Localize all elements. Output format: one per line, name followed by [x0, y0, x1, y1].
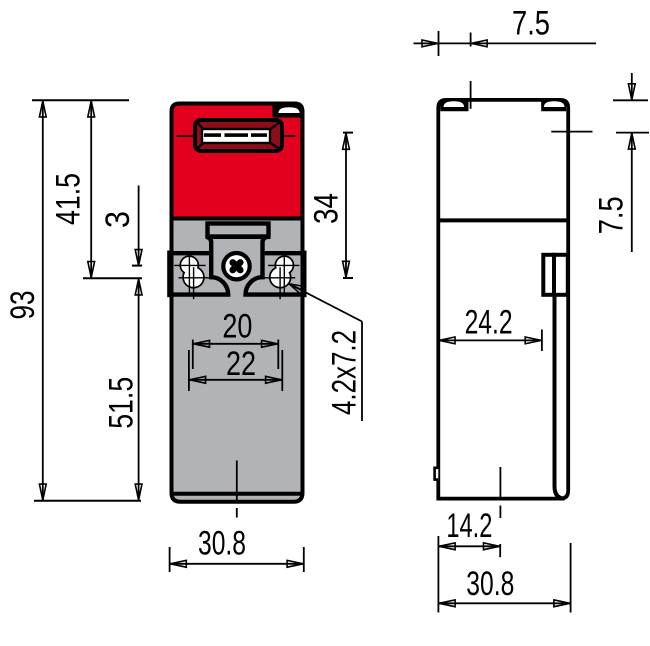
svg-text:7.5: 7.5 — [512, 5, 550, 43]
svg-text:30.8: 30.8 — [198, 524, 246, 562]
svg-text:93: 93 — [4, 291, 42, 320]
svg-text:22: 22 — [226, 345, 256, 383]
svg-text:24.2: 24.2 — [465, 304, 513, 342]
svg-text:30.8: 30.8 — [466, 565, 514, 603]
svg-text:4.2x7.2: 4.2x7.2 — [326, 330, 364, 415]
svg-text:7.5: 7.5 — [592, 196, 630, 234]
svg-text:14.2: 14.2 — [446, 507, 492, 545]
svg-text:20: 20 — [222, 308, 252, 346]
svg-text:41.5: 41.5 — [50, 173, 88, 225]
svg-text:3: 3 — [99, 211, 137, 228]
svg-text:34: 34 — [308, 193, 346, 224]
svg-text:51.5: 51.5 — [103, 377, 141, 429]
